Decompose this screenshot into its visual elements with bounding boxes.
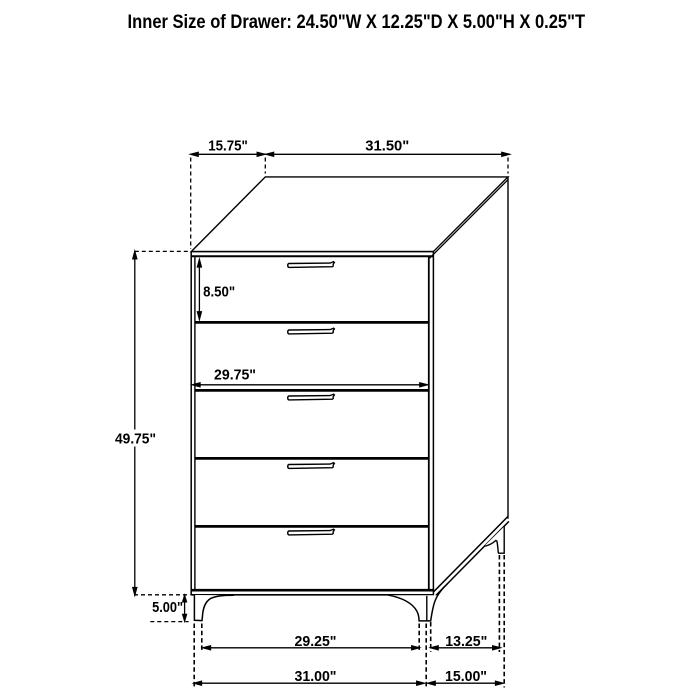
svg-text:8.50": 8.50"	[203, 283, 235, 300]
svg-text:Inner Size of Drawer: 24.50"W: Inner Size of Drawer: 24.50"W X 12.25"D …	[128, 12, 586, 33]
svg-text:31.50": 31.50"	[365, 138, 409, 155]
svg-text:29.25": 29.25"	[295, 633, 337, 650]
svg-text:13.25": 13.25"	[445, 633, 487, 650]
svg-text:29.75": 29.75"	[214, 367, 256, 384]
svg-text:31.00": 31.00"	[295, 668, 337, 685]
svg-text:5.00": 5.00"	[152, 599, 183, 616]
svg-text:15.75": 15.75"	[208, 138, 248, 155]
svg-text:15.00": 15.00"	[445, 668, 487, 685]
svg-text:49.75": 49.75"	[115, 431, 156, 448]
